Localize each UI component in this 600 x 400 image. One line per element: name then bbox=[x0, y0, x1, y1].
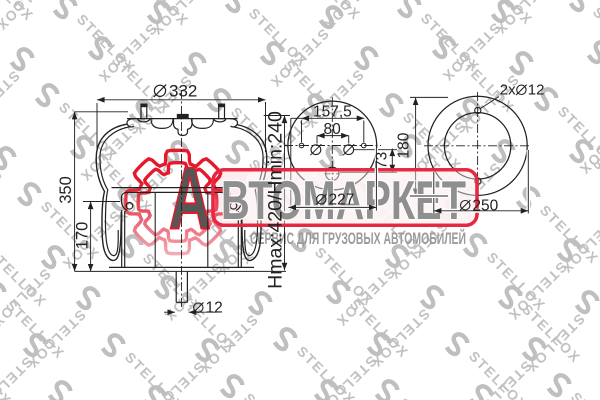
svg-text:332: 332 bbox=[169, 82, 197, 101]
svg-text:350: 350 bbox=[57, 176, 75, 204]
svg-text:73: 73 bbox=[374, 152, 391, 169]
svg-text:250: 250 bbox=[472, 197, 498, 214]
svg-text:227: 227 bbox=[329, 192, 355, 209]
svg-text:12: 12 bbox=[206, 300, 223, 317]
svg-text:Hmax:420/Hmin:240: Hmax:420/Hmin:240 bbox=[265, 111, 287, 289]
svg-text:2x: 2x bbox=[500, 82, 516, 99]
svg-text:12: 12 bbox=[528, 82, 545, 99]
svg-text:180: 180 bbox=[396, 132, 413, 158]
svg-text:80: 80 bbox=[324, 121, 342, 138]
svg-text:157,5: 157,5 bbox=[313, 104, 352, 121]
svg-text:170: 170 bbox=[74, 222, 92, 250]
svg-text:А: А bbox=[169, 149, 211, 247]
